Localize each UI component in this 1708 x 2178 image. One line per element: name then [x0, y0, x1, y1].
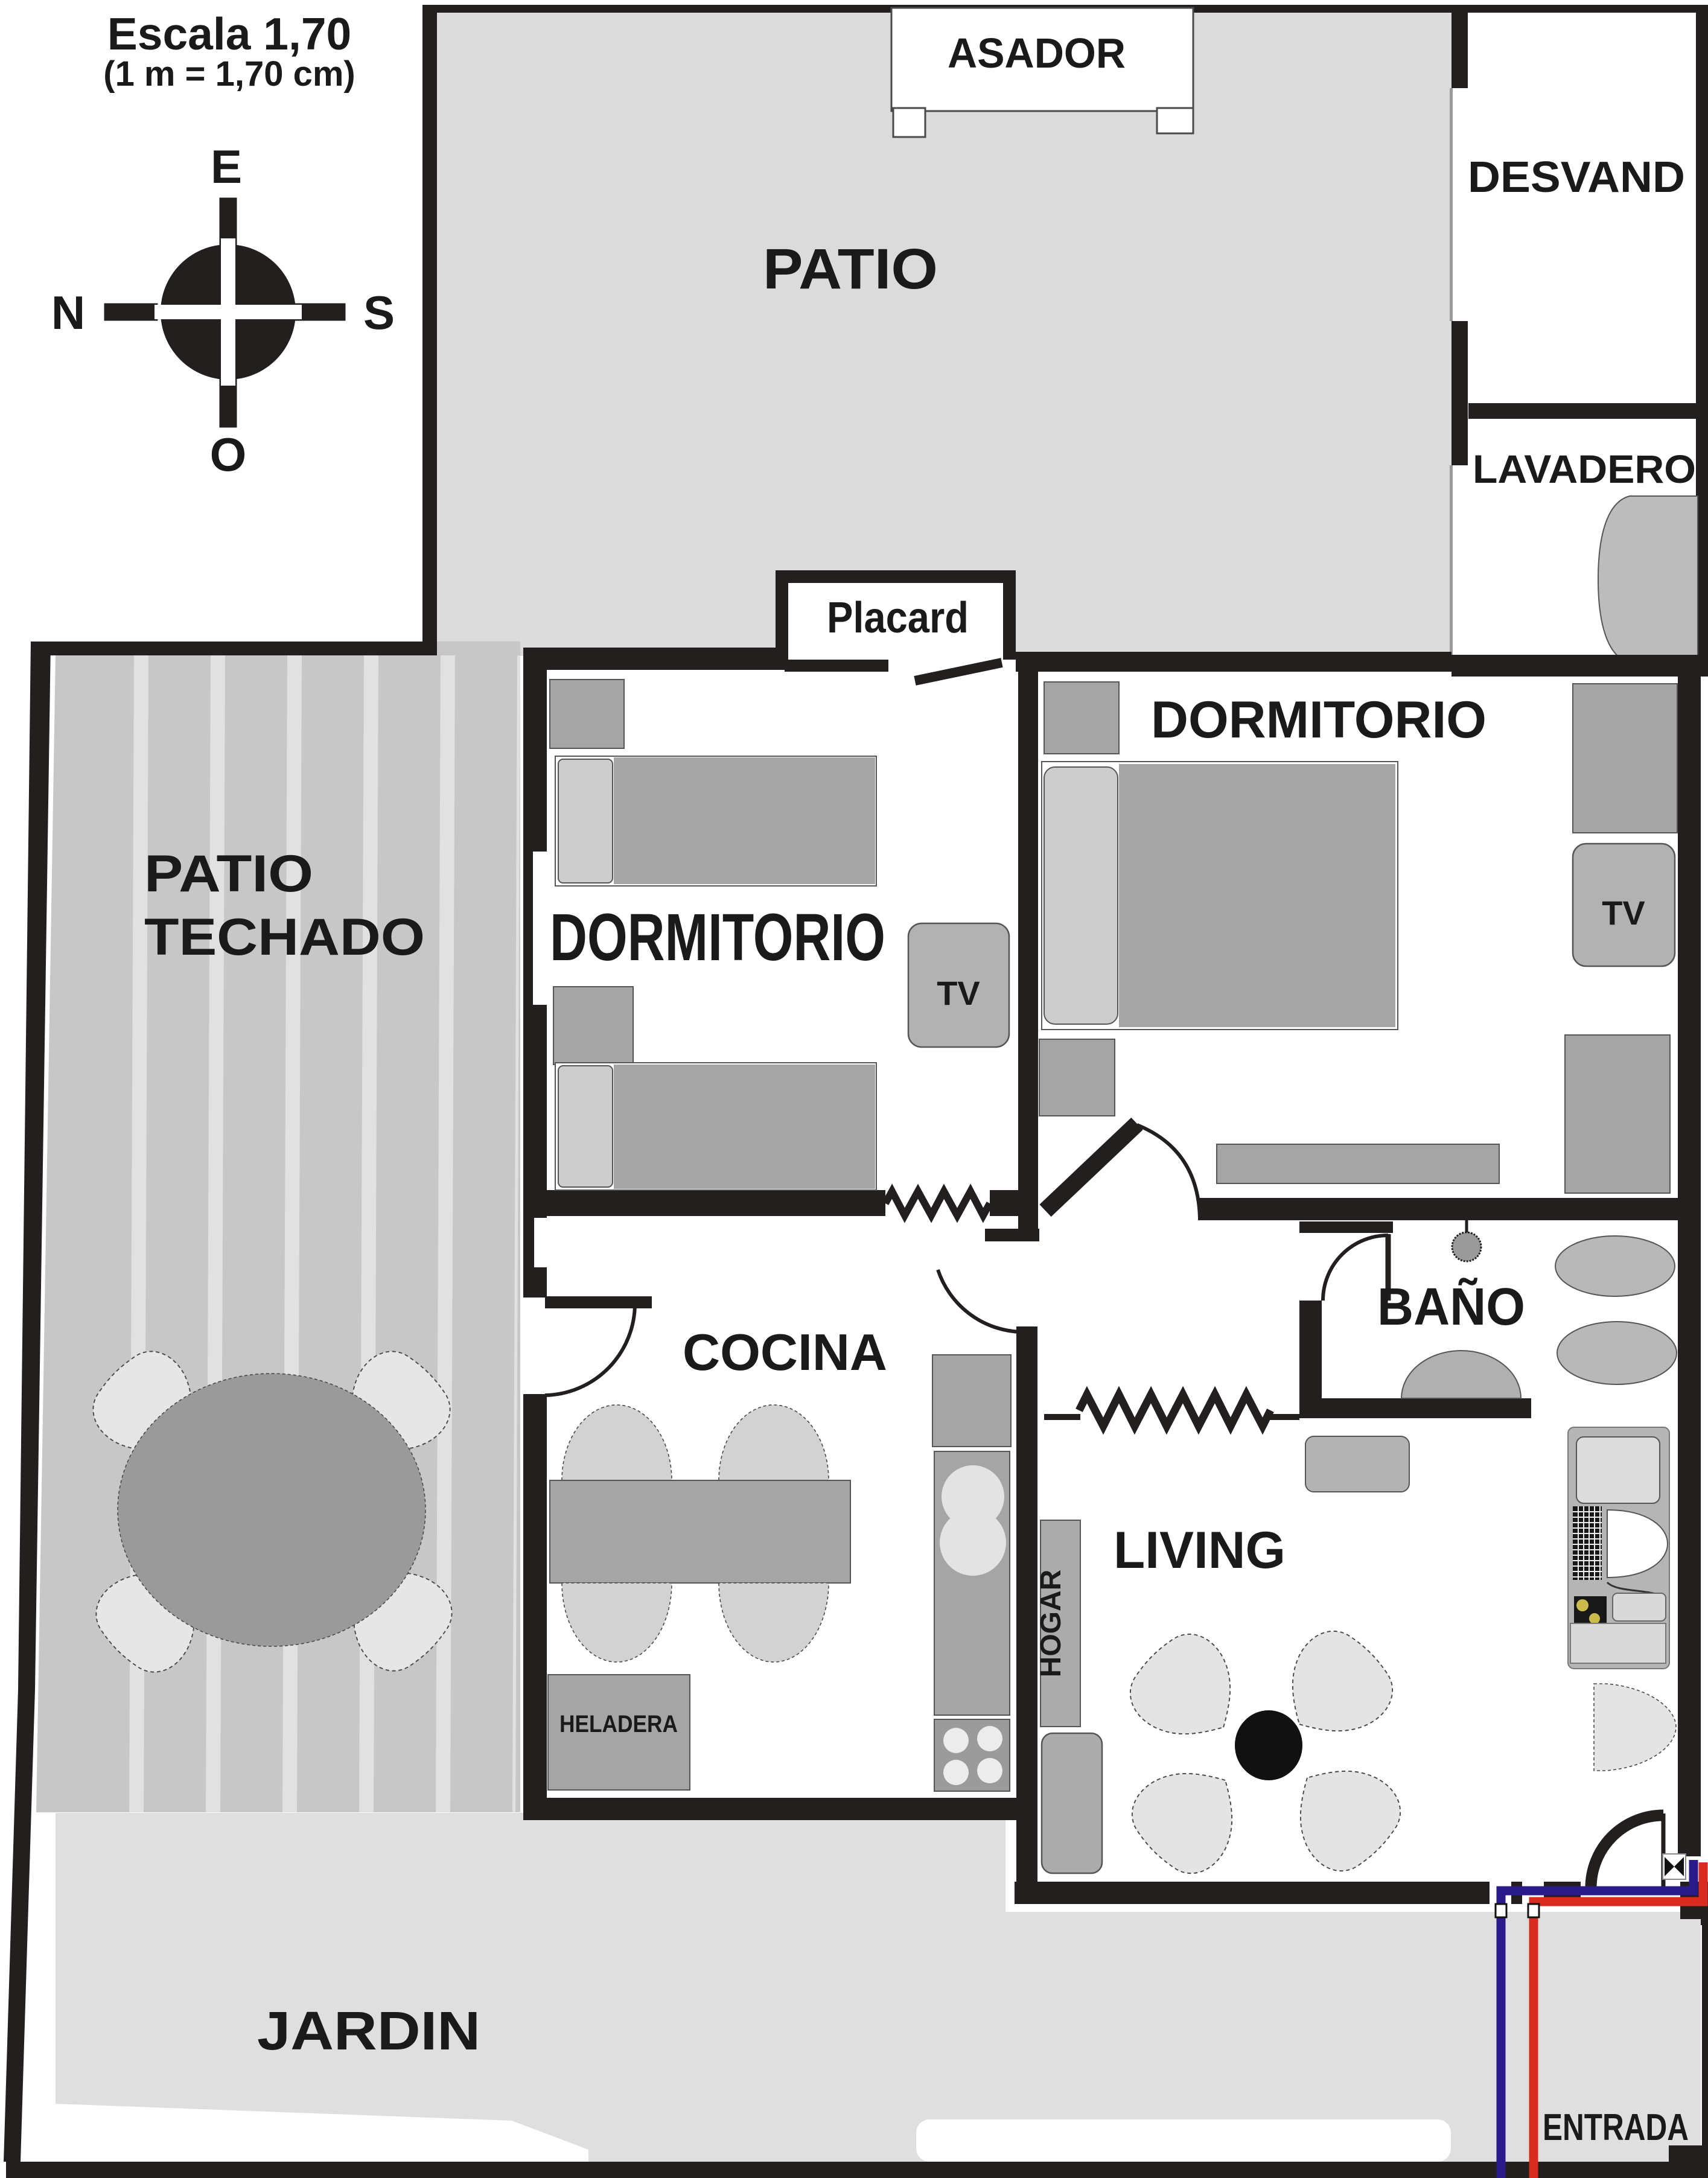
svg-text:PATIO: PATIO: [144, 845, 313, 903]
svg-text:DESVAND: DESVAND: [1468, 153, 1685, 202]
svg-text:HOGAR: HOGAR: [1035, 1570, 1067, 1678]
svg-text:N: N: [51, 286, 85, 339]
svg-text:TV: TV: [1602, 894, 1645, 932]
svg-text:Placard: Placard: [827, 594, 969, 642]
svg-text:(1 m = 1,70 cm): (1 m = 1,70 cm): [103, 54, 355, 94]
svg-text:S: S: [363, 286, 395, 339]
svg-text:E: E: [211, 140, 242, 193]
svg-text:ENTRADA: ENTRADA: [1543, 2107, 1689, 2148]
svg-text:HELADERA: HELADERA: [559, 1711, 678, 1737]
svg-text:TECHADO: TECHADO: [144, 908, 425, 966]
svg-text:Escala 1,70: Escala 1,70: [107, 8, 352, 59]
svg-text:JARDIN: JARDIN: [257, 2001, 480, 2062]
svg-text:DORMITORIO: DORMITORIO: [550, 900, 885, 975]
svg-text:ASADOR: ASADOR: [948, 30, 1126, 77]
svg-text:LIVING: LIVING: [1114, 1521, 1286, 1579]
svg-text:DORMITORIO: DORMITORIO: [1151, 691, 1487, 749]
svg-text:TV: TV: [937, 974, 980, 1012]
svg-text:LAVADERO: LAVADERO: [1473, 447, 1696, 491]
svg-text:O: O: [210, 428, 247, 481]
svg-text:PATIO: PATIO: [763, 237, 938, 301]
svg-text:COCINA: COCINA: [683, 1324, 887, 1381]
svg-text:BAÑO: BAÑO: [1377, 1278, 1525, 1336]
